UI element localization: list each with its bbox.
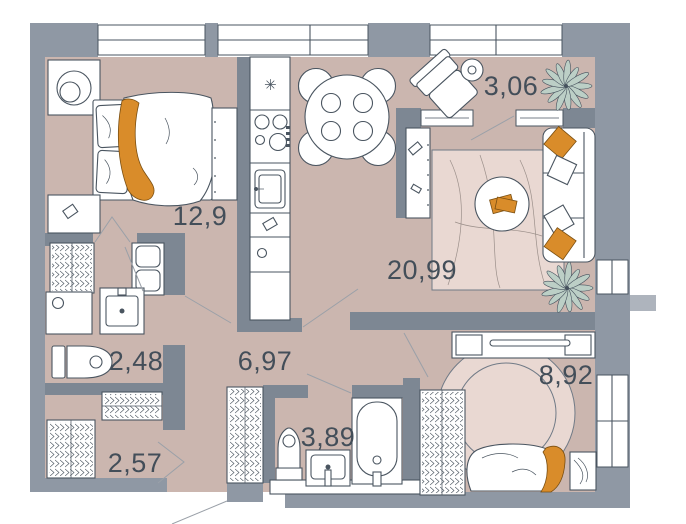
hallway-wardrobe (227, 387, 263, 483)
console-cabinet (406, 128, 430, 218)
label-bathroom-small: 2,48 (109, 346, 164, 376)
entrance-door (172, 501, 227, 524)
wardrobe-left (47, 420, 95, 478)
side-table (461, 59, 483, 81)
washer-dryer-stack (132, 243, 164, 295)
washing-machine (46, 292, 92, 334)
single-bed (467, 444, 565, 492)
coffee-table (475, 177, 529, 231)
label-bathroom-large: 3,89 (301, 422, 356, 452)
label-loggia: 3,06 (484, 71, 539, 101)
window-loggia (430, 25, 562, 55)
nightstand-bedroom2 (570, 452, 596, 490)
label-bedroom1: 12,9 (173, 201, 228, 231)
kitchen: ✳ (250, 57, 290, 320)
label-living: 20,99 (387, 255, 457, 285)
sink-large-bath (306, 450, 350, 486)
nightstand (48, 195, 100, 233)
toilet-small-bath (52, 346, 112, 378)
tall-wardrobe (212, 108, 237, 200)
exterior-pier (630, 295, 656, 311)
floor-plan: ✳ (0, 0, 686, 524)
label-closet: 2,57 (108, 448, 163, 478)
label-hallway: 6,97 (238, 346, 293, 376)
double-bed (93, 92, 215, 205)
floor-plan-page: ✳ (0, 0, 686, 524)
coat-closet (50, 243, 94, 293)
desk-with-stools (452, 332, 595, 358)
nightstand-with-lamp (48, 60, 100, 115)
table-top (305, 75, 389, 159)
wardrobe-bedroom2 (420, 390, 465, 495)
window-bedroom2-right (597, 375, 628, 467)
sofa (543, 127, 595, 262)
window-kitchen (218, 25, 368, 55)
fridge-snowflake-icon: ✳ (264, 76, 277, 94)
wardrobe-top (102, 392, 162, 420)
loggia-sill-right (516, 110, 563, 126)
bathtub (352, 398, 402, 486)
sink-small-bath (100, 288, 144, 334)
dining-table-4-seats (299, 69, 396, 166)
window-living-right (597, 260, 628, 294)
window-bedroom1 (98, 25, 205, 55)
label-bedroom2: 8,92 (539, 360, 594, 390)
